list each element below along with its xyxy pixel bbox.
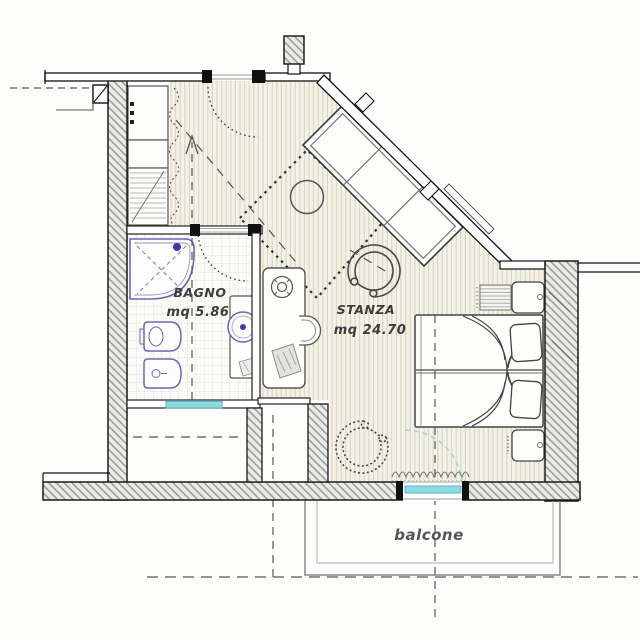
balcone-label: balcone bbox=[394, 526, 464, 544]
floor-plan-svg: BAGNO mq 5.86 STANZA mq 24.70 balcone bbox=[0, 0, 640, 640]
nightstand-icon bbox=[508, 282, 544, 313]
stanza-label: STANZA bbox=[337, 302, 395, 317]
stanza-area: mq 24.70 bbox=[334, 323, 407, 338]
radiator-icon bbox=[480, 285, 511, 310]
pillow-icon bbox=[510, 380, 543, 419]
double-bed-icon bbox=[415, 315, 543, 427]
balcony-door-glazing-icon bbox=[405, 486, 461, 493]
nightstand-icon bbox=[508, 430, 544, 461]
pillow-icon bbox=[510, 323, 543, 362]
bagno-label: BAGNO bbox=[173, 285, 226, 300]
bagno-window-glazing-icon bbox=[166, 402, 222, 409]
chimney-pillar-icon bbox=[284, 36, 304, 64]
bagno-area: mq 5.86 bbox=[167, 305, 230, 320]
bidet-icon bbox=[144, 359, 181, 388]
wardrobe-icon bbox=[128, 86, 168, 225]
toilet-icon bbox=[140, 322, 181, 351]
desk-icon bbox=[263, 268, 305, 388]
floor-plan: BAGNO mq 5.86 STANZA mq 24.70 balcone bbox=[0, 0, 640, 640]
